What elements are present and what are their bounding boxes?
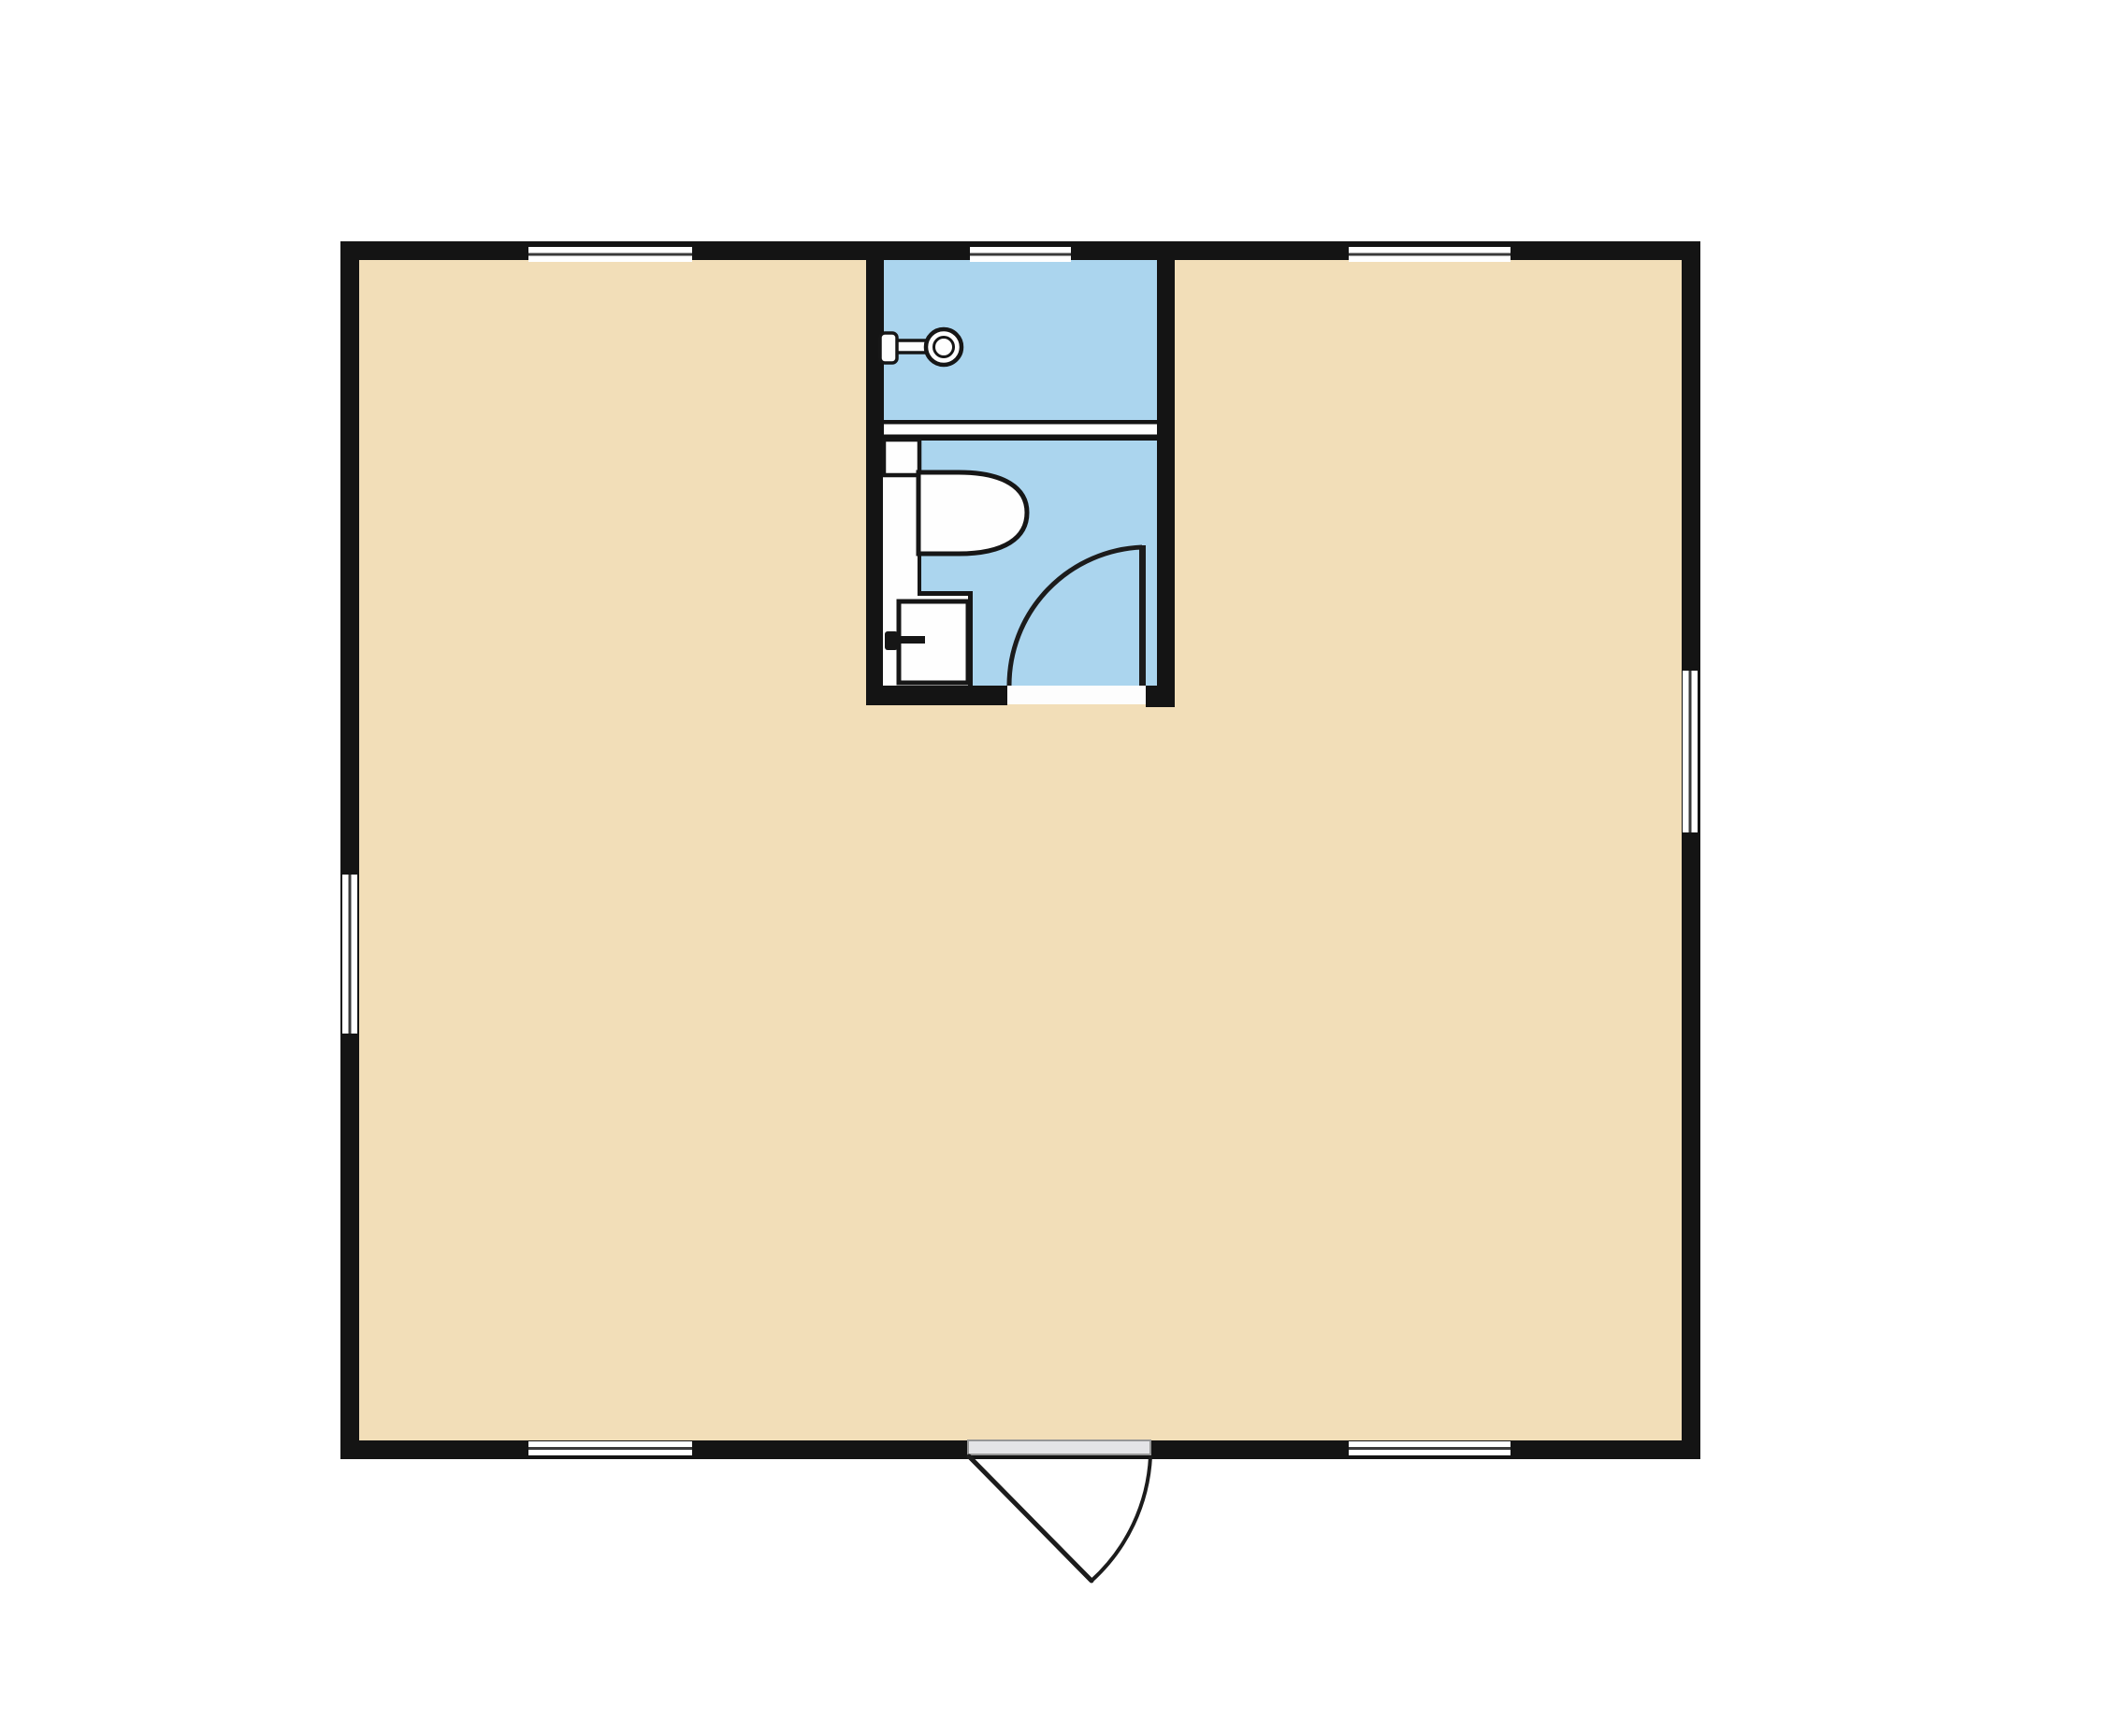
window-mullion — [1349, 1447, 1511, 1450]
sink — [885, 601, 968, 683]
window-mullion — [349, 875, 352, 1034]
floor-plan — [340, 241, 1700, 1581]
window-bottom-left — [528, 1441, 692, 1455]
shower-head-arm — [895, 340, 929, 353]
bathroom-wall-bottom-left — [866, 686, 1007, 705]
window-mullion — [1349, 253, 1511, 256]
window-bottom-right — [1349, 1441, 1511, 1455]
window-mullion — [528, 253, 692, 256]
bathroom-wall-right — [1157, 260, 1175, 704]
toilet-bowl — [918, 472, 1027, 554]
shower-partition-line-bottom — [884, 435, 1157, 441]
floor-plan-canvas — [0, 0, 2125, 1736]
window-mullion — [970, 253, 1071, 256]
bathroom — [866, 260, 1175, 707]
window-mullion — [1689, 671, 1692, 832]
shower-partition-line-top — [884, 420, 1157, 425]
window-mullion — [528, 1447, 692, 1450]
bathroom-door-leaf — [1139, 545, 1146, 686]
window-top-right — [1349, 247, 1511, 262]
bathroom-wall-bottom-right — [1146, 686, 1175, 707]
window-right — [1683, 671, 1698, 832]
window-top-middle — [970, 247, 1071, 262]
shower-head-outer-ring — [926, 329, 961, 365]
vanity-strip-edge-line — [918, 552, 921, 594]
bathroom-wall-left — [866, 260, 884, 704]
entry-door-slab — [968, 1440, 1150, 1454]
shower-head-bracket — [880, 333, 897, 363]
window-top-left — [528, 247, 692, 262]
sink-faucet-handle — [885, 631, 898, 650]
toilet-tank — [884, 440, 919, 475]
bathroom-door-threshold — [1007, 686, 1146, 704]
sink-faucet-spout — [897, 636, 925, 644]
window-left — [342, 875, 357, 1034]
counter-edge-horizontal — [918, 591, 973, 596]
